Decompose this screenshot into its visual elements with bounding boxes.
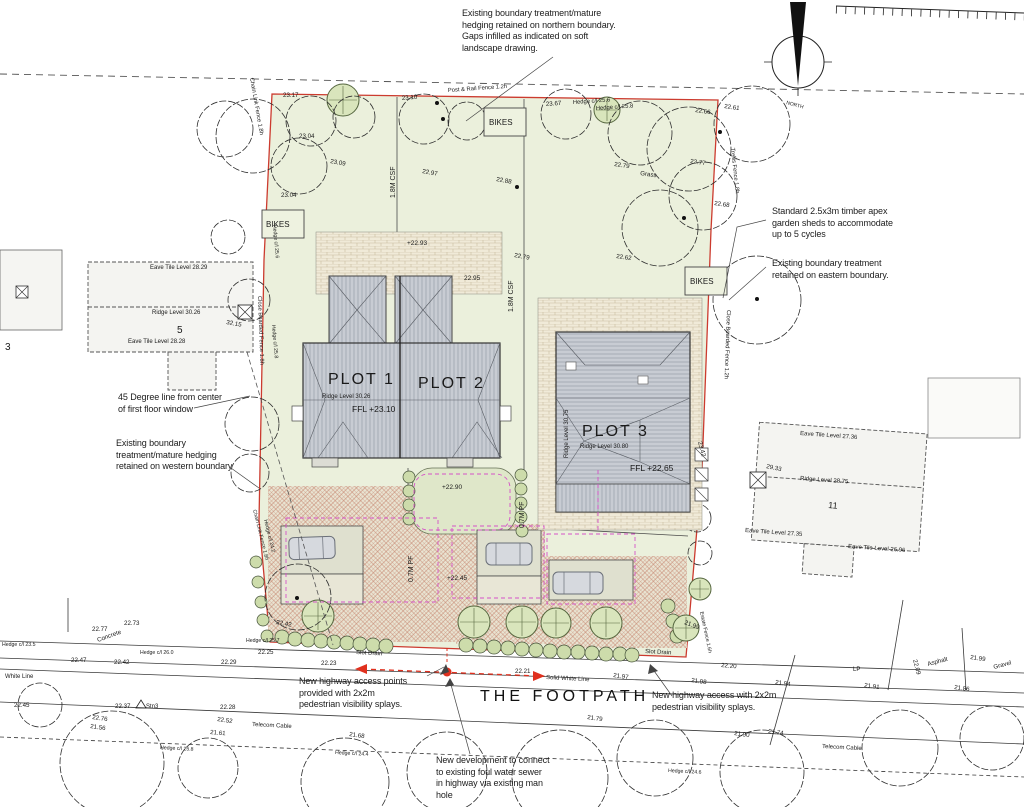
ffl-label: FFL +23.10: [352, 404, 396, 414]
spot-level: 22.21: [515, 668, 531, 675]
spot-level: 22.45: [14, 702, 30, 709]
level-label: Eave Tile Level 28.29: [150, 265, 208, 271]
spot-level: 21.98: [691, 677, 708, 686]
spot-level: 22.28: [220, 704, 236, 711]
spot-level: 21.97: [613, 672, 630, 681]
spot-level: 23.04: [299, 133, 315, 140]
spot-level: 22.52: [217, 716, 234, 725]
sheds-note: Standard 2.5x3m timber apex garden sheds…: [772, 206, 893, 241]
north-label: NORTH: [785, 100, 804, 110]
plot-title: PLOT 3: [582, 423, 649, 440]
spot-level: 21.61: [210, 729, 227, 737]
road-label: White Line: [5, 674, 34, 680]
spot-level: 22.23: [321, 660, 337, 667]
spot-level: 23.10: [402, 94, 419, 102]
spot-level: 21.91: [864, 682, 881, 691]
spot-level: 23.17: [283, 92, 299, 99]
car: [289, 536, 336, 560]
north-boundary-note: Existing boundary treatment/mature hedgi…: [462, 8, 616, 55]
existing-house-11: [749, 422, 927, 581]
car: [553, 572, 603, 594]
spot-level: +22.45: [447, 575, 467, 582]
west-boundary-note: Existing boundary treatment/mature hedgi…: [116, 438, 232, 473]
survey-station-marker: [136, 700, 146, 708]
north-arrow: [764, 2, 832, 96]
spot-level: 22.25: [258, 649, 274, 656]
existing-house-5-porch: [168, 352, 216, 390]
spot-level: 21.79: [587, 714, 604, 723]
outbuilding: [928, 378, 1020, 438]
spot-level: 22.37: [115, 703, 131, 710]
house-number: 3: [5, 342, 11, 353]
bikes-label: BIKES: [690, 277, 714, 286]
spot-level: 22.77: [92, 626, 108, 633]
plot-title: PLOT 1: [328, 371, 395, 388]
level-label: Ridge Level 30.26: [322, 394, 371, 400]
hedge-label: Hedge c/l 26.0: [140, 650, 174, 656]
spot-level: 22.61: [724, 103, 741, 112]
surface-label: Asphalt: [927, 656, 949, 668]
hedge-label: Hedge c/l 24.4: [335, 750, 369, 758]
drainage-label: Slot Drain: [356, 650, 383, 657]
front-garden-bed: [412, 468, 516, 534]
sewer-note: New development to connect to existing f…: [436, 755, 549, 802]
east-boundary-note: Existing boundary treatment retained on …: [772, 258, 889, 281]
fence-label: Trellis Fence 1.8h: [729, 148, 740, 194]
fence-label: Close Boarded Fence 1.2h: [723, 310, 731, 379]
access-points-note: New highway access points provided with …: [299, 676, 407, 711]
scale-bar: [836, 6, 1024, 17]
utility-label: Telecom Cable: [252, 722, 293, 730]
utility-label: Telecom Cable: [822, 744, 863, 752]
bikes-label: BIKES: [489, 118, 513, 127]
spot-level: 22.68: [714, 200, 731, 209]
fence-label: Chain Link Fence 1.8h: [248, 77, 264, 135]
level-label: Ridge Level 30.80: [580, 444, 629, 450]
spot-level: 22.73: [124, 620, 140, 627]
building-plot-3: [556, 332, 690, 512]
spot-level: 23.67: [546, 100, 562, 108]
spot-level: 21.99: [970, 654, 987, 663]
spot-level: 22.42: [114, 659, 130, 666]
spot-level: 22.29: [221, 659, 237, 666]
fence-label: 1.8M CSF: [390, 166, 397, 198]
fence-label: Post & Rail Fence 1.2h: [448, 84, 508, 94]
hedge-label: Hedge c/l 24.6: [668, 768, 702, 776]
hedge-label: Hedge c/l 23.5: [2, 642, 36, 648]
car: [486, 543, 532, 565]
bikes-label: BIKES: [266, 220, 290, 229]
spot-level: 21.56: [90, 723, 107, 732]
existing-house-3: [0, 250, 62, 330]
spot-level: 22.76: [92, 714, 109, 723]
fence-label: Close Boarded Fence 1.8h: [256, 296, 264, 365]
spot-level: 21.74: [768, 728, 785, 737]
fence-label: 0.7M PF: [519, 502, 526, 528]
spot-level: 21.86: [954, 684, 971, 693]
ffl-label: FFL +22.65: [630, 463, 674, 473]
access-east-note: New highway access with 2x2m pedestrian …: [652, 690, 776, 713]
spot-level: +22.90: [442, 484, 462, 491]
spot-level: 22.47: [71, 657, 87, 664]
fence-label: Estate Fence 1.6h: [698, 611, 713, 654]
degree-line-note: 45 Degree line from center of first floo…: [118, 392, 222, 415]
road-label: Solid White Line: [546, 675, 590, 683]
hedge-label: Hedge c/l 25.7: [246, 638, 280, 644]
fence-label: 1.8M CSF: [508, 280, 515, 312]
level-label: Eave Tile Level 28.28: [128, 339, 186, 345]
spot-level: 22.20: [721, 662, 738, 670]
spot-level: 21.94: [775, 679, 792, 688]
spot-level: +22.93: [407, 240, 427, 247]
rear-boundary-dashed-line: [0, 74, 1024, 94]
level-label: Ridge Level 30.75: [564, 409, 570, 458]
site-plan-page: 23.1723.10Post & Rail Fence 1.2h23.67Hed…: [0, 0, 1024, 807]
surface-label: Gravel: [993, 659, 1012, 670]
spot-level: 22.95: [464, 275, 481, 282]
survey-label: Stn3: [146, 704, 159, 710]
utility-label: LP: [853, 667, 860, 673]
plot-title: PLOT 2: [418, 375, 485, 392]
road-name: THE FOOTPATH: [480, 688, 649, 706]
spot-level: 21.90: [734, 730, 751, 739]
spot-level: 22.09: [911, 659, 922, 676]
parking-bay: [477, 576, 541, 604]
hedge-label: Hedge c/l 25.8: [160, 745, 194, 753]
house-number: 11: [828, 500, 838, 511]
parking-bay: [281, 574, 363, 604]
fence-label: 0.7M PF: [408, 556, 415, 582]
level-label: Ridge Level 30.26: [152, 310, 201, 316]
house-number: 5: [177, 325, 183, 336]
spot-level: 23.04: [281, 192, 297, 199]
